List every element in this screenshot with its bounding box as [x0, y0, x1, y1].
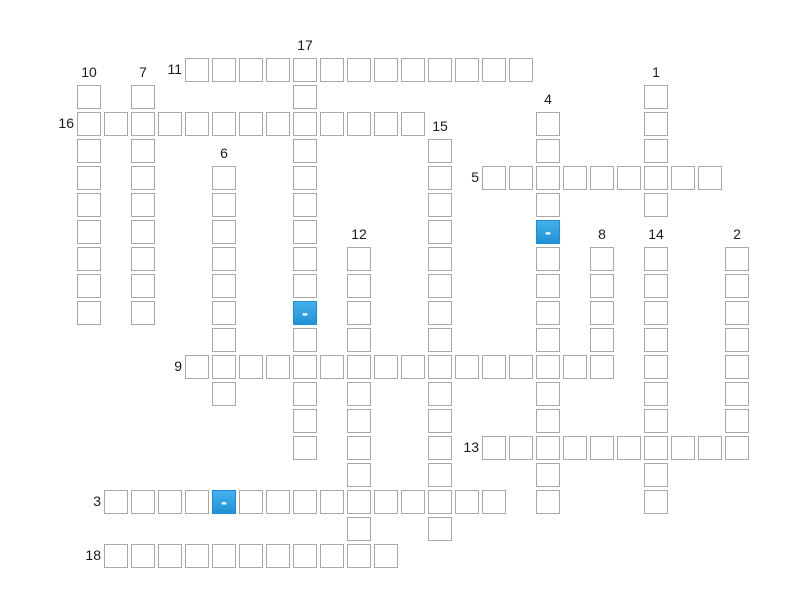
cell[interactable]	[347, 58, 371, 82]
cell[interactable]	[725, 382, 749, 406]
cell[interactable]	[77, 301, 101, 325]
cell[interactable]	[293, 166, 317, 190]
cell[interactable]	[320, 112, 344, 136]
cell[interactable]	[347, 328, 371, 352]
cell[interactable]	[644, 328, 668, 352]
cell[interactable]	[536, 301, 560, 325]
cell[interactable]	[77, 85, 101, 109]
cell[interactable]	[293, 490, 317, 514]
cell[interactable]	[158, 544, 182, 568]
clue-number-15: 15	[420, 119, 460, 134]
cell[interactable]	[293, 220, 317, 244]
cell[interactable]	[131, 166, 155, 190]
cell[interactable]	[131, 193, 155, 217]
cell[interactable]	[698, 436, 722, 460]
cell[interactable]	[131, 85, 155, 109]
cell[interactable]	[482, 490, 506, 514]
clue-number-14: 14	[636, 227, 676, 242]
clue-number-2: 2	[717, 227, 757, 242]
cell[interactable]	[320, 58, 344, 82]
cell[interactable]	[644, 166, 668, 190]
cell[interactable]	[266, 58, 290, 82]
cell[interactable]	[428, 490, 452, 514]
cell[interactable]	[725, 355, 749, 379]
clue-number-13: 13	[435, 440, 479, 455]
clue-number-7: 7	[123, 65, 163, 80]
cell[interactable]	[536, 274, 560, 298]
cell[interactable]	[644, 193, 668, 217]
cell[interactable]	[617, 166, 641, 190]
cell[interactable]	[293, 328, 317, 352]
cell[interactable]	[536, 166, 560, 190]
cell[interactable]	[347, 463, 371, 487]
cell[interactable]	[77, 139, 101, 163]
cell[interactable]	[401, 490, 425, 514]
cell[interactable]	[455, 490, 479, 514]
cell[interactable]	[590, 247, 614, 271]
cell[interactable]	[428, 355, 452, 379]
cell[interactable]	[320, 355, 344, 379]
cell[interactable]	[131, 139, 155, 163]
cell[interactable]	[347, 274, 371, 298]
clue-number-5: 5	[435, 170, 479, 185]
cell[interactable]	[590, 166, 614, 190]
cell[interactable]	[536, 382, 560, 406]
cell[interactable]	[428, 220, 452, 244]
clue-number-4: 4	[528, 92, 568, 107]
cell[interactable]	[428, 382, 452, 406]
cell[interactable]	[320, 490, 344, 514]
clue-number-3: 3	[57, 494, 101, 509]
cell[interactable]	[104, 544, 128, 568]
highlighted-cell[interactable]: -	[536, 220, 560, 244]
cell[interactable]	[644, 382, 668, 406]
cell[interactable]	[239, 58, 263, 82]
cell[interactable]	[212, 166, 236, 190]
cell[interactable]	[347, 436, 371, 460]
cell[interactable]	[725, 274, 749, 298]
cell[interactable]	[131, 220, 155, 244]
cell[interactable]	[293, 193, 317, 217]
cell[interactable]	[401, 355, 425, 379]
cell[interactable]	[212, 220, 236, 244]
cell[interactable]	[131, 112, 155, 136]
cell[interactable]	[185, 355, 209, 379]
cell[interactable]	[374, 544, 398, 568]
cell[interactable]	[347, 517, 371, 541]
clue-number-16: 16	[30, 116, 74, 131]
clue-number-12: 12	[339, 227, 379, 242]
cell[interactable]	[212, 193, 236, 217]
cell[interactable]	[428, 58, 452, 82]
cell[interactable]	[644, 247, 668, 271]
cell[interactable]	[671, 166, 695, 190]
cell[interactable]	[293, 58, 317, 82]
cell[interactable]	[455, 355, 479, 379]
cell[interactable]	[293, 382, 317, 406]
cell[interactable]	[428, 328, 452, 352]
cell[interactable]	[77, 166, 101, 190]
cell[interactable]	[293, 409, 317, 433]
cell[interactable]	[104, 490, 128, 514]
cell[interactable]	[644, 355, 668, 379]
cell[interactable]	[266, 490, 290, 514]
cell[interactable]	[131, 274, 155, 298]
cell[interactable]	[77, 112, 101, 136]
cell[interactable]	[536, 193, 560, 217]
cell[interactable]	[563, 436, 587, 460]
crossword-board: 17-111071164-15651281429133-18	[0, 0, 800, 600]
cell[interactable]	[347, 490, 371, 514]
highlighted-cell[interactable]: -	[212, 490, 236, 514]
cell[interactable]	[428, 274, 452, 298]
cell[interactable]	[536, 436, 560, 460]
cell[interactable]	[482, 58, 506, 82]
cell[interactable]	[509, 166, 533, 190]
cell[interactable]	[293, 274, 317, 298]
cell[interactable]	[239, 112, 263, 136]
clue-number-1: 1	[636, 65, 676, 80]
cell[interactable]	[536, 355, 560, 379]
cell[interactable]	[536, 328, 560, 352]
clue-number-8: 8	[582, 227, 622, 242]
cell[interactable]	[698, 166, 722, 190]
cell[interactable]	[320, 544, 344, 568]
cell[interactable]	[293, 355, 317, 379]
cell[interactable]	[428, 193, 452, 217]
cell[interactable]	[644, 463, 668, 487]
cell[interactable]	[536, 112, 560, 136]
cell[interactable]	[266, 355, 290, 379]
clue-number-6: 6	[204, 146, 244, 161]
cell[interactable]	[293, 247, 317, 271]
cell[interactable]	[374, 112, 398, 136]
cell[interactable]	[590, 301, 614, 325]
cell[interactable]	[158, 490, 182, 514]
cell[interactable]	[212, 544, 236, 568]
clue-number-17: 17	[285, 38, 325, 53]
cell[interactable]	[212, 301, 236, 325]
cell[interactable]	[401, 58, 425, 82]
cell[interactable]	[644, 409, 668, 433]
cell[interactable]	[590, 328, 614, 352]
cell[interactable]	[212, 382, 236, 406]
cell[interactable]	[428, 463, 452, 487]
cell[interactable]	[212, 355, 236, 379]
cell[interactable]	[347, 382, 371, 406]
cell[interactable]	[482, 166, 506, 190]
cell[interactable]	[374, 58, 398, 82]
cell[interactable]	[374, 355, 398, 379]
cell[interactable]	[536, 139, 560, 163]
cell[interactable]	[293, 544, 317, 568]
cell[interactable]	[131, 247, 155, 271]
cell[interactable]	[131, 301, 155, 325]
cell[interactable]	[77, 274, 101, 298]
cell[interactable]	[428, 517, 452, 541]
cell[interactable]	[212, 58, 236, 82]
cell[interactable]	[185, 112, 209, 136]
cell[interactable]	[185, 58, 209, 82]
cell[interactable]	[347, 247, 371, 271]
cell[interactable]	[185, 490, 209, 514]
cell[interactable]	[725, 247, 749, 271]
cell[interactable]	[509, 436, 533, 460]
cell[interactable]	[536, 490, 560, 514]
cell[interactable]	[239, 355, 263, 379]
cell[interactable]	[536, 463, 560, 487]
cell[interactable]	[347, 112, 371, 136]
cell[interactable]	[509, 355, 533, 379]
cell[interactable]	[536, 247, 560, 271]
cell[interactable]	[131, 490, 155, 514]
cell[interactable]	[266, 544, 290, 568]
cell[interactable]	[239, 490, 263, 514]
cell[interactable]	[131, 544, 155, 568]
cell[interactable]	[536, 409, 560, 433]
cell[interactable]	[590, 436, 614, 460]
cell[interactable]	[104, 112, 128, 136]
cell[interactable]	[212, 328, 236, 352]
cell[interactable]	[644, 112, 668, 136]
cell[interactable]	[725, 436, 749, 460]
cell[interactable]	[374, 490, 398, 514]
cell[interactable]	[725, 301, 749, 325]
cell[interactable]	[293, 112, 317, 136]
cell[interactable]	[590, 355, 614, 379]
cell[interactable]	[725, 328, 749, 352]
cell[interactable]	[563, 355, 587, 379]
cell[interactable]	[212, 112, 236, 136]
cell[interactable]	[428, 139, 452, 163]
cell[interactable]	[347, 301, 371, 325]
cell[interactable]	[644, 85, 668, 109]
cell[interactable]	[77, 247, 101, 271]
highlighted-cell[interactable]: -	[293, 301, 317, 325]
cell[interactable]	[293, 436, 317, 460]
cell[interactable]	[617, 436, 641, 460]
cell[interactable]	[212, 274, 236, 298]
clue-number-10: 10	[69, 65, 109, 80]
cell[interactable]	[428, 409, 452, 433]
cell[interactable]	[158, 112, 182, 136]
clue-number-9: 9	[138, 359, 182, 374]
cell[interactable]	[482, 355, 506, 379]
cell[interactable]	[644, 139, 668, 163]
cell[interactable]	[185, 544, 209, 568]
cell[interactable]	[644, 490, 668, 514]
cell[interactable]	[347, 544, 371, 568]
cell[interactable]	[428, 247, 452, 271]
cell[interactable]	[428, 301, 452, 325]
cell[interactable]	[509, 58, 533, 82]
cell[interactable]	[239, 544, 263, 568]
cell[interactable]	[590, 274, 614, 298]
cell[interactable]	[293, 85, 317, 109]
clue-number-18: 18	[57, 548, 101, 563]
cell[interactable]	[347, 409, 371, 433]
cell[interactable]	[347, 355, 371, 379]
cell[interactable]	[77, 220, 101, 244]
cell[interactable]	[644, 436, 668, 460]
cell[interactable]	[212, 247, 236, 271]
cell[interactable]	[563, 166, 587, 190]
cell[interactable]	[77, 193, 101, 217]
cell[interactable]	[671, 436, 695, 460]
cell[interactable]	[455, 58, 479, 82]
cell[interactable]	[266, 112, 290, 136]
cell[interactable]	[293, 139, 317, 163]
cell[interactable]	[644, 301, 668, 325]
cell[interactable]	[725, 409, 749, 433]
cell[interactable]	[482, 436, 506, 460]
cell[interactable]	[644, 274, 668, 298]
